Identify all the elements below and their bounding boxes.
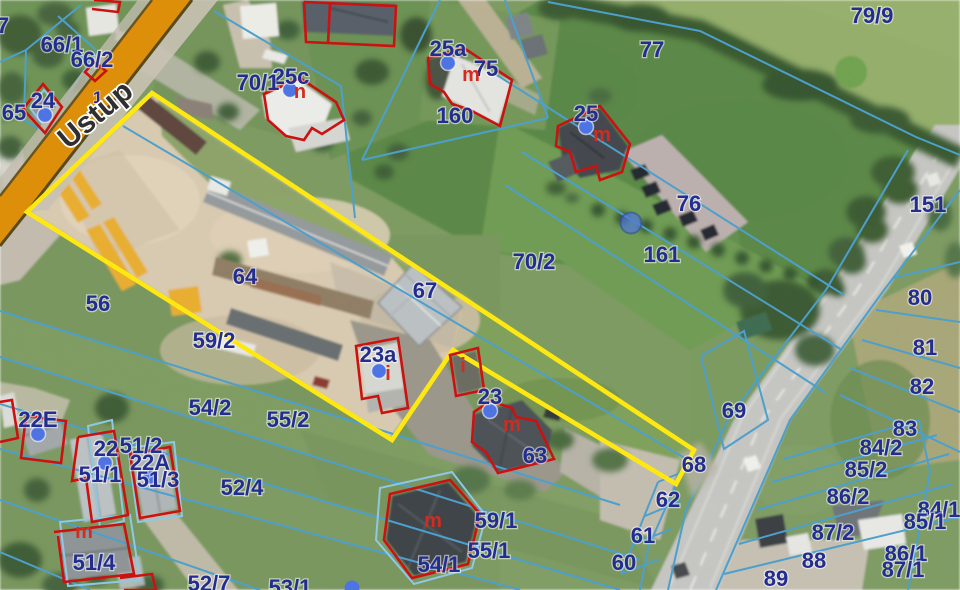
- svg-text:59/2: 59/2: [193, 328, 236, 353]
- svg-text:23a: 23a: [360, 342, 397, 367]
- svg-text:160: 160: [437, 103, 474, 128]
- svg-text:m: m: [424, 510, 442, 532]
- svg-text:76: 76: [677, 191, 701, 216]
- svg-text:55/1: 55/1: [468, 538, 511, 563]
- svg-text:64: 64: [233, 264, 258, 289]
- svg-text:86/2: 86/2: [827, 484, 870, 509]
- svg-text:51/1: 51/1: [79, 462, 122, 487]
- svg-text:7: 7: [0, 13, 9, 38]
- svg-text:85/1: 85/1: [904, 509, 947, 534]
- svg-text:89: 89: [764, 566, 788, 590]
- svg-text:151: 151: [910, 192, 947, 217]
- svg-text:m: m: [503, 414, 521, 436]
- svg-text:67: 67: [413, 278, 437, 303]
- svg-text:51/4: 51/4: [73, 550, 117, 575]
- svg-text:161: 161: [644, 242, 681, 267]
- svg-text:m: m: [462, 64, 480, 86]
- svg-text:60: 60: [612, 550, 636, 575]
- svg-text:81: 81: [913, 335, 937, 360]
- svg-text:80: 80: [908, 285, 932, 310]
- svg-text:62: 62: [656, 487, 680, 512]
- svg-text:22: 22: [94, 436, 118, 461]
- svg-text:85/2: 85/2: [845, 457, 888, 482]
- svg-text:51/3: 51/3: [137, 467, 180, 492]
- svg-text:69: 69: [722, 398, 746, 423]
- svg-text:87/1: 87/1: [882, 557, 925, 582]
- svg-text:77: 77: [640, 37, 664, 62]
- svg-text:25: 25: [574, 101, 598, 126]
- svg-text:82: 82: [910, 374, 934, 399]
- svg-text:56: 56: [86, 291, 110, 316]
- svg-text:53/1: 53/1: [269, 575, 312, 590]
- svg-text:i: i: [460, 355, 466, 377]
- svg-text:n: n: [294, 81, 306, 103]
- svg-text:79/9: 79/9: [851, 3, 894, 28]
- svg-text:70/1: 70/1: [237, 70, 280, 95]
- svg-text:55/2: 55/2: [267, 407, 310, 432]
- svg-text:54/1: 54/1: [418, 552, 461, 577]
- svg-text:52/4: 52/4: [221, 475, 265, 500]
- svg-text:25a: 25a: [430, 36, 467, 61]
- svg-text:m: m: [75, 521, 93, 543]
- svg-text:66/2: 66/2: [71, 47, 114, 72]
- svg-text:70/2: 70/2: [513, 249, 556, 274]
- svg-text:59/1: 59/1: [475, 508, 518, 533]
- svg-text:87/2: 87/2: [812, 520, 855, 545]
- svg-text:65: 65: [2, 100, 26, 125]
- svg-text:54/2: 54/2: [189, 395, 232, 420]
- svg-text:52/7: 52/7: [188, 571, 231, 590]
- svg-text:24: 24: [31, 88, 56, 113]
- svg-text:23: 23: [478, 384, 502, 409]
- svg-text:i: i: [385, 363, 391, 385]
- svg-text:63: 63: [523, 443, 547, 468]
- svg-text:88: 88: [802, 548, 826, 573]
- svg-text:68: 68: [682, 452, 706, 477]
- svg-text:m: m: [593, 124, 611, 146]
- svg-text:61: 61: [631, 523, 655, 548]
- svg-text:22E: 22E: [18, 407, 57, 432]
